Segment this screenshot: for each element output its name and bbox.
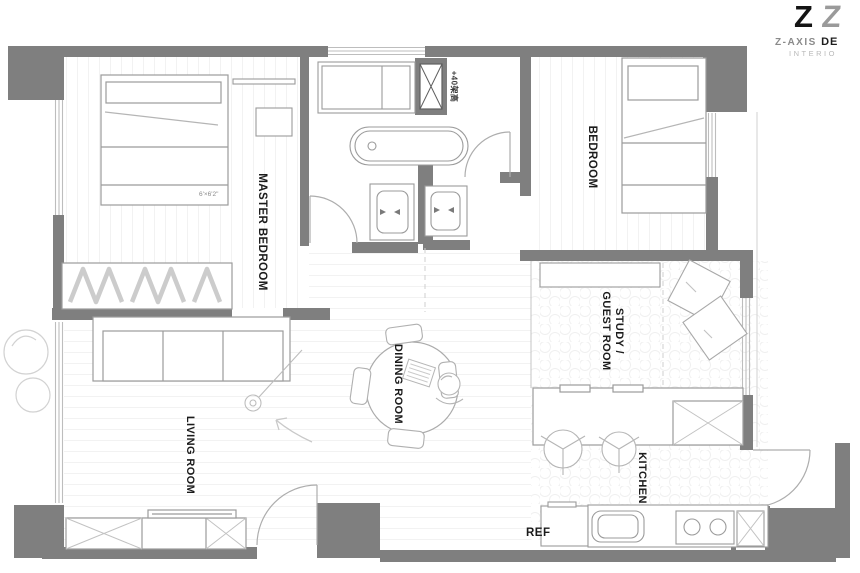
toilet-right (425, 186, 467, 236)
logo-brand-line: Z-AXIS DE (775, 36, 860, 48)
wardrobe (62, 263, 232, 309)
kitchen-counter (588, 505, 768, 547)
bath-door-left (310, 196, 357, 243)
pipe-shaft (420, 64, 442, 109)
refrigerator (541, 502, 588, 546)
label-master-bedroom: MASTER BEDROOM (253, 176, 269, 288)
master-bed (101, 75, 228, 205)
balcony-plants-sketch (4, 330, 50, 412)
label-living-room: LIVING ROOM (182, 416, 198, 494)
bath-door-right (465, 132, 510, 177)
label-bedroom: BEDROOM (583, 127, 599, 187)
logo-marks: Z Z (794, 2, 860, 34)
bathtub (350, 127, 468, 165)
logo-z-shadow-icon: Z (820, 2, 842, 32)
logo: Z Z Z-AXIS DE INTERIO (770, 2, 860, 70)
toilet-left (370, 184, 414, 240)
study-shelf (540, 263, 660, 287)
floor-plan-canvas: MASTER BEDROOM BEDROOM STUDY / GUEST ROO… (0, 0, 860, 573)
logo-z-icon: Z (794, 2, 813, 32)
label-refrigerator: REF (526, 527, 551, 539)
bath-vanity (318, 62, 415, 113)
label-study-line2: GUEST ROOM (599, 291, 612, 370)
label-kitchen: KITCHEN (634, 450, 650, 506)
label-raised-floor: +40架高 (448, 61, 461, 113)
logo-brand-text: Z-AXIS (775, 37, 817, 48)
single-bed (622, 58, 706, 213)
stove (676, 511, 734, 544)
logo-subtitle: INTERIO (789, 49, 860, 58)
label-study-line1: STUDY / (612, 308, 625, 354)
floor-plan-drawing (0, 0, 860, 573)
label-study-guest-room: STUDY / GUEST ROOM (599, 286, 625, 376)
sofa (93, 317, 290, 381)
logo-brand-bold-text: DE (821, 36, 838, 48)
dining-chair (387, 428, 425, 449)
label-bed-size: 6'×6'2" (199, 191, 218, 198)
label-dining-room: DINING ROOM (390, 344, 406, 424)
